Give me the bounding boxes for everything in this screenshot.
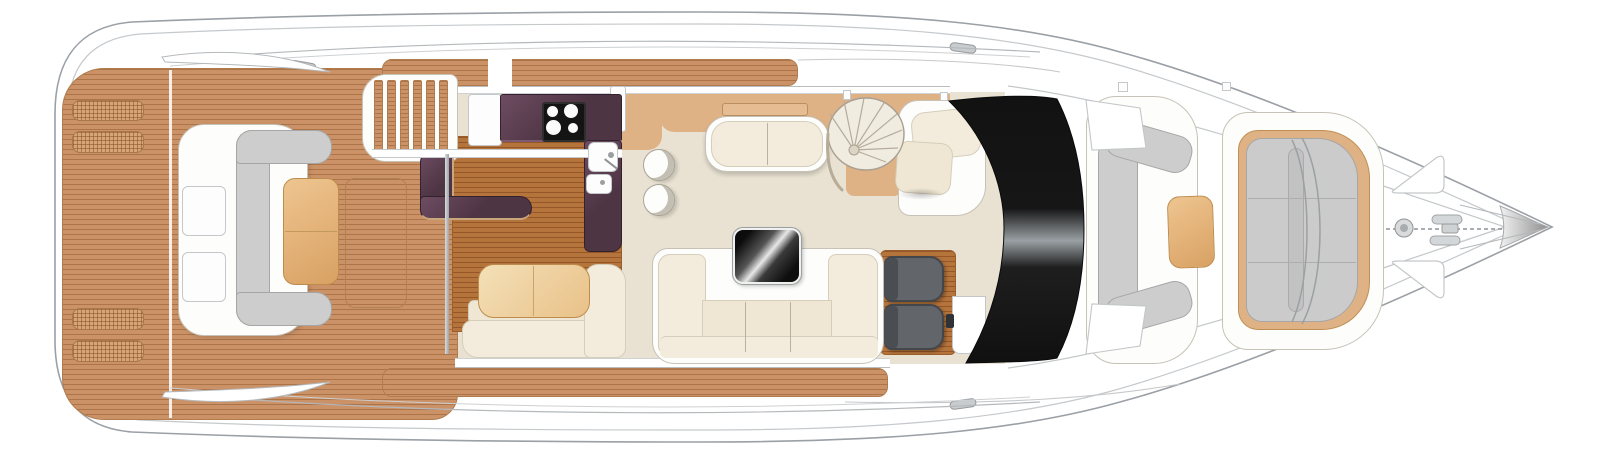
transom-seat-arm-top bbox=[236, 130, 332, 164]
bow-hatch-pill-top bbox=[1432, 215, 1462, 224]
sunpad-seam-2 bbox=[1248, 262, 1356, 263]
stair-tread-5 bbox=[426, 80, 435, 156]
cockpit-hatch-outline bbox=[345, 178, 407, 308]
door-mullion-post bbox=[445, 154, 449, 354]
dinette-table-seam bbox=[533, 266, 534, 316]
tv-cabinet bbox=[733, 228, 801, 284]
transom-joint-line bbox=[169, 70, 172, 418]
sunpad-seam-1 bbox=[1248, 198, 1356, 199]
cooktop-burner-2 bbox=[564, 104, 578, 118]
dinette-bench-arm bbox=[584, 264, 626, 358]
foredeck-mullion-1 bbox=[1118, 82, 1128, 92]
saloon-sofa-seam-2 bbox=[790, 302, 791, 352]
stair-tread-3 bbox=[400, 80, 409, 156]
helm-console-trim bbox=[952, 296, 986, 354]
sink-faucet-1 bbox=[608, 152, 614, 158]
stair-tread-4 bbox=[413, 80, 422, 156]
foredeck-table bbox=[1167, 195, 1215, 269]
galley-sink-2 bbox=[586, 174, 612, 194]
side-deck-teak-starboard bbox=[382, 368, 888, 397]
transom-seat-arm-bottom bbox=[236, 292, 332, 326]
saloon-sofa-fwd-seam bbox=[767, 123, 768, 165]
cockpit-table-seam bbox=[285, 231, 337, 232]
helm-seat-2-back bbox=[884, 306, 898, 348]
cockpit-door-sill bbox=[372, 149, 622, 158]
cooktop-burner-4 bbox=[568, 123, 578, 133]
cooktop-burner-1 bbox=[547, 106, 558, 117]
yacht-deck-plan bbox=[0, 0, 1600, 454]
bow-hatch-pill-bottom bbox=[1430, 236, 1460, 245]
dinette-table bbox=[478, 264, 590, 318]
transom-step-1 bbox=[182, 186, 226, 236]
saloon-sofa-back bbox=[660, 336, 878, 358]
saloon-sofa-seam-1 bbox=[745, 302, 746, 352]
saloon-stool-2 bbox=[643, 184, 675, 216]
platform-hatch-3 bbox=[72, 308, 144, 330]
cooktop-burner-3 bbox=[546, 120, 561, 135]
companion-seat-shadow bbox=[898, 188, 944, 200]
platform-hatch-2 bbox=[72, 131, 144, 153]
saloon-window-band-port bbox=[455, 86, 950, 94]
stair-tread-2 bbox=[387, 80, 396, 156]
dinette-bench-back bbox=[462, 320, 602, 358]
bow-stem-fitting bbox=[1500, 206, 1548, 248]
sink-faucet-2 bbox=[600, 180, 605, 185]
helm-seat-1-back bbox=[884, 258, 898, 300]
galley-worktop-white bbox=[468, 94, 502, 146]
stair-landing-floor bbox=[846, 148, 902, 196]
platform-hatch-4 bbox=[72, 340, 144, 362]
sunpad-backrest-split bbox=[1288, 148, 1304, 312]
sideboard-top-outline bbox=[722, 103, 808, 116]
window-mullion-1 bbox=[843, 90, 851, 100]
side-gate-port bbox=[488, 57, 512, 88]
chain-stopper bbox=[1442, 224, 1458, 233]
foredeck-mullion-2 bbox=[1222, 82, 1231, 91]
helm-hardware bbox=[946, 314, 954, 328]
windlass-gypsy bbox=[1400, 224, 1408, 232]
stair-tread-6 bbox=[439, 80, 448, 156]
saloon-stool-1 bbox=[643, 149, 675, 181]
dinette-l-bench-seat bbox=[420, 196, 532, 220]
stair-tread-1 bbox=[374, 80, 383, 156]
platform-hatch-1 bbox=[72, 100, 144, 121]
transom-step-2 bbox=[182, 252, 226, 302]
